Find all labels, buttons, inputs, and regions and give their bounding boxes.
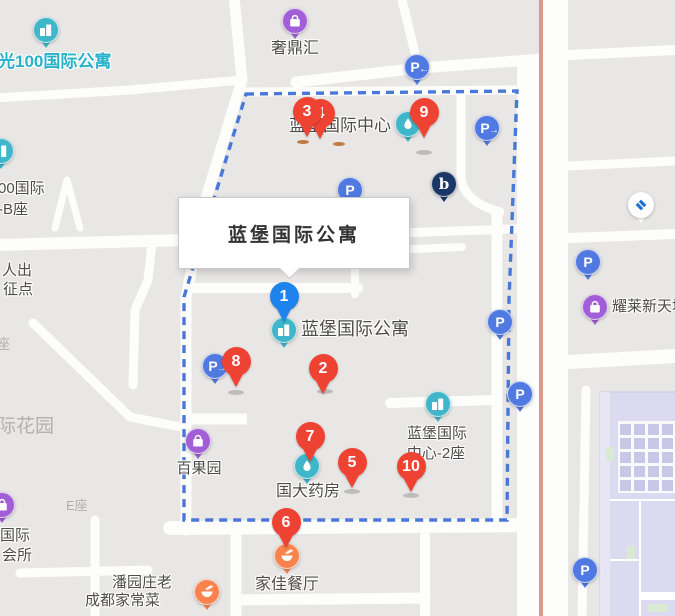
pin-shadow	[344, 489, 360, 494]
map-pin-10[interactable]: 10	[396, 452, 426, 492]
restaurant-bowl-icon[interactable]	[194, 579, 220, 610]
shopping-bag-icon[interactable]	[185, 428, 211, 459]
shopping-bag-icon[interactable]	[0, 492, 15, 523]
pin-shadow	[416, 150, 432, 155]
map-pin-6[interactable]: 6	[271, 508, 301, 548]
map-pin-9[interactable]: 9	[409, 98, 439, 138]
poi-label[interactable]: 国大药房	[276, 483, 340, 501]
map-pin-7[interactable]: 7	[295, 422, 325, 462]
apartment-building-icon[interactable]	[33, 17, 59, 48]
indoor-map-building	[600, 392, 675, 616]
poi-label[interactable]: 人出	[2, 262, 32, 279]
tooltip-title: 蓝堡国际公寓	[228, 220, 360, 247]
brand-b-icon[interactable]: b	[431, 171, 457, 202]
poi-label[interactable]: 蓝堡国际	[407, 425, 467, 442]
poi-label[interactable]: 成都家常菜	[85, 592, 160, 609]
poi-label[interactable]: 家佳餐厅	[255, 576, 319, 594]
area-label: 际花园	[0, 416, 54, 438]
poi-label[interactable]: 潘园庄老	[112, 574, 172, 591]
building-icon-left-edge[interactable]	[0, 138, 14, 169]
pin-anchor-mark	[333, 142, 345, 146]
map-pin-1[interactable]: 1	[269, 282, 299, 322]
poi-label[interactable]: 00国际	[0, 180, 45, 197]
pin-shadow	[228, 390, 244, 395]
parking-icon[interactable]: P	[575, 249, 601, 280]
poi-label[interactable]: 耀莱新天地	[612, 298, 675, 315]
map-pin-2[interactable]: 2	[308, 354, 338, 394]
shopping-bag-icon[interactable]	[282, 8, 308, 39]
poi-label[interactable]: 百果园	[176, 460, 221, 477]
parking-icon[interactable]: P	[487, 309, 513, 340]
parking-icon[interactable]: P	[572, 557, 598, 588]
poi-label[interactable]: 会所	[2, 547, 32, 564]
poi-label[interactable]: 国际	[0, 527, 30, 544]
poi-label[interactable]: 征点	[3, 281, 33, 298]
area-label: 座	[0, 336, 10, 352]
parking-icon[interactable]: P	[507, 381, 533, 412]
shopping-bag-icon[interactable]	[582, 294, 608, 325]
poi-label[interactable]: 光100国际公寓	[0, 52, 111, 72]
map-pin-8[interactable]: 8	[221, 347, 251, 387]
pin-anchor-mark	[297, 140, 309, 144]
poi-label[interactable]: 蓝堡国际公寓	[301, 319, 409, 340]
map-canvas[interactable]: P←P→bPPP→PPP光100国际公寓奢鼎汇蓝堡国际中心00国际-B座人出征点…	[0, 0, 675, 616]
pin-shadow	[403, 493, 419, 498]
poi-label[interactable]: -B座	[0, 201, 28, 218]
main-street	[517, 0, 568, 616]
base-map-layer	[0, 0, 675, 616]
bank-ccb-icon[interactable]	[628, 192, 654, 223]
office-building-icon[interactable]	[425, 391, 451, 422]
parking-arrow-left-icon[interactable]: P←	[404, 54, 430, 85]
area-label: E座	[66, 499, 88, 514]
map-pin-5[interactable]: 5	[337, 448, 367, 488]
parking-arrow-right-icon[interactable]: P→	[474, 115, 500, 146]
selected-poi-tooltip[interactable]: 蓝堡国际公寓	[178, 197, 410, 269]
map-pin-3[interactable]: 3	[292, 97, 322, 137]
poi-label[interactable]: 奢鼎汇	[271, 40, 319, 58]
